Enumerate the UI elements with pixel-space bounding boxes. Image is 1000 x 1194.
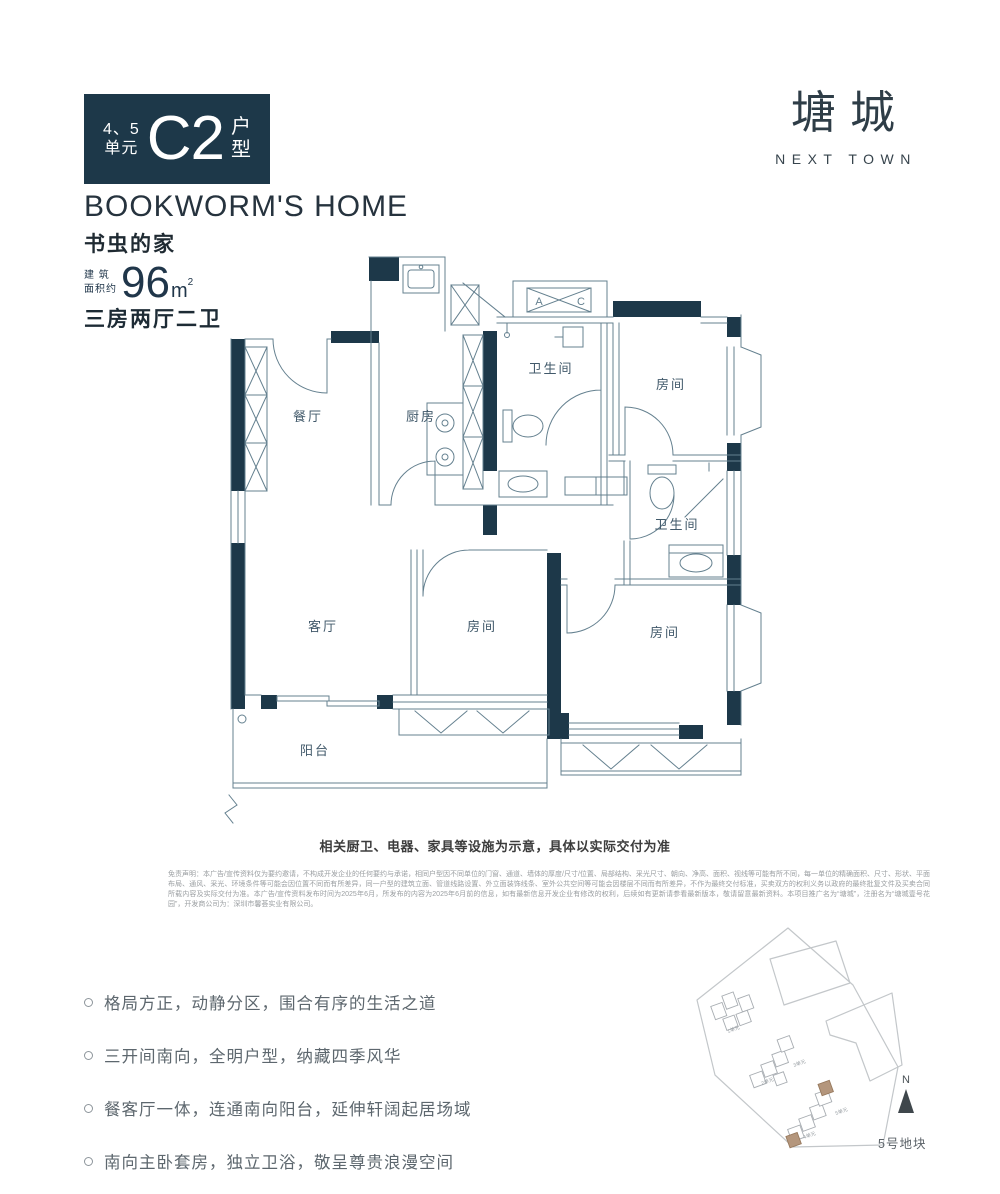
area-prefix-line2: 面积约 — [84, 283, 117, 297]
disclaimer-text: 免责声明：本广告/宣传资料仅为要约邀请，不构成开发企业的任何要约与承诺，相同户型… — [168, 870, 930, 910]
unit-label-4: 4单元 — [802, 1130, 816, 1141]
logo-cn: 塘城 — [768, 76, 932, 141]
badge-units-line1: 4、5 — [103, 120, 140, 139]
selling-point-text: 南向主卧套房，独立卫浴，敬呈尊贵浪漫空间 — [104, 1149, 454, 1173]
brand-logo: 塘城 NEXT TOWN — [768, 76, 918, 167]
room-label-bath2: 卫生间 — [654, 517, 699, 532]
site-plan: 1单元 2单元 3单元 4单元 5单元 N 5号地块 — [680, 925, 980, 1175]
bullet-circle-icon — [84, 1104, 93, 1113]
room-label-living: 客厅 — [308, 619, 338, 634]
bullet-circle-icon — [84, 1051, 93, 1060]
area-value: 96 — [121, 264, 170, 301]
selling-point-item: 南向主卧套房，独立卫浴，敬呈尊贵浪漫空间 — [84, 1149, 644, 1173]
selling-point-text: 三开间南向，全明户型，纳藏四季风华 — [104, 1043, 402, 1067]
north-label: N — [902, 1074, 910, 1086]
logo-en: NEXT TOWN — [768, 151, 924, 167]
ac-label-a: A — [535, 296, 543, 308]
area-unit: m2 — [171, 278, 193, 301]
unit-label-3: 3单元 — [792, 1058, 806, 1069]
area-prefix: 建 筑 面积约 — [84, 269, 117, 296]
area-spec: 建 筑 面积约 96 m2 — [84, 264, 193, 301]
room-label-balcony: 阳台 — [300, 743, 330, 758]
north-indicator: N — [898, 1074, 914, 1113]
selling-point-text: 格局方正，动静分区，围合有序的生活之道 — [104, 990, 437, 1014]
badge-suffix: 户 型 — [231, 116, 251, 162]
site-outlines — [697, 928, 902, 1147]
floor-plan: 餐厅 厨房 卫生间 房间 卫生间 客厅 房间 房间 阳台 A C — [215, 255, 775, 835]
ac-label-c: C — [577, 296, 585, 308]
room-label-kitchen: 厨房 — [406, 409, 436, 424]
badge-type-code: C2 — [147, 108, 224, 170]
badge-suffix-line1: 户 — [231, 116, 251, 139]
selling-point-item: 三开间南向，全明户型，纳藏四季风华 — [84, 1043, 644, 1067]
room-label-bath1: 卫生间 — [528, 361, 573, 376]
area-prefix-line1: 建 筑 — [84, 269, 117, 283]
plot-label: 5号地块 — [878, 1137, 926, 1151]
unit-type-badge: 4、5 单元 C2 户 型 — [84, 94, 270, 184]
selling-point-text: 餐客厅一体，连通南向阳台，延伸轩阔起居场域 — [104, 1096, 472, 1120]
poster-root: 4、5 单元 C2 户 型 塘城 NEXT TOWN BOOKWORM'S HO… — [0, 0, 1000, 1194]
plan-caption: 相关厨卫、电器、家具等设施为示意，具体以实际交付为准 — [215, 836, 775, 855]
bullet-circle-icon — [84, 1157, 93, 1166]
large-building-1 — [770, 941, 850, 1005]
badge-units-line2: 单元 — [103, 139, 140, 158]
selling-points: 格局方正，动静分区，围合有序的生活之道 三开间南向，全明户型，纳藏四季风华 餐客… — [84, 990, 644, 1194]
area-unit-sup: 2 — [188, 277, 194, 288]
bullet-circle-icon — [84, 998, 93, 1007]
structural-walls — [231, 257, 741, 739]
room-label-bedroom-top: 房间 — [656, 377, 686, 392]
badge-suffix-line2: 型 — [231, 139, 251, 162]
north-arrow-icon — [898, 1089, 914, 1113]
title-en: BOOKWORM'S HOME — [84, 190, 408, 224]
area-unit-m: m — [171, 280, 188, 302]
unit-label-5: 5单元 — [834, 1106, 848, 1117]
plot-boundary — [697, 928, 898, 1147]
title-cn: 书虫的家 — [84, 228, 176, 258]
room-label-dining: 餐厅 — [293, 409, 323, 424]
badge-units: 4、5 单元 — [103, 120, 140, 158]
room-label-bedroom-mid: 房间 — [467, 619, 497, 634]
selling-point-item: 格局方正，动静分区，围合有序的生活之道 — [84, 990, 644, 1014]
room-label-bedroom-right: 房间 — [650, 625, 680, 640]
selling-point-item: 餐客厅一体，连通南向阳台，延伸轩阔起居场域 — [84, 1096, 644, 1120]
layout-type: 三房两厅二卫 — [84, 303, 222, 333]
